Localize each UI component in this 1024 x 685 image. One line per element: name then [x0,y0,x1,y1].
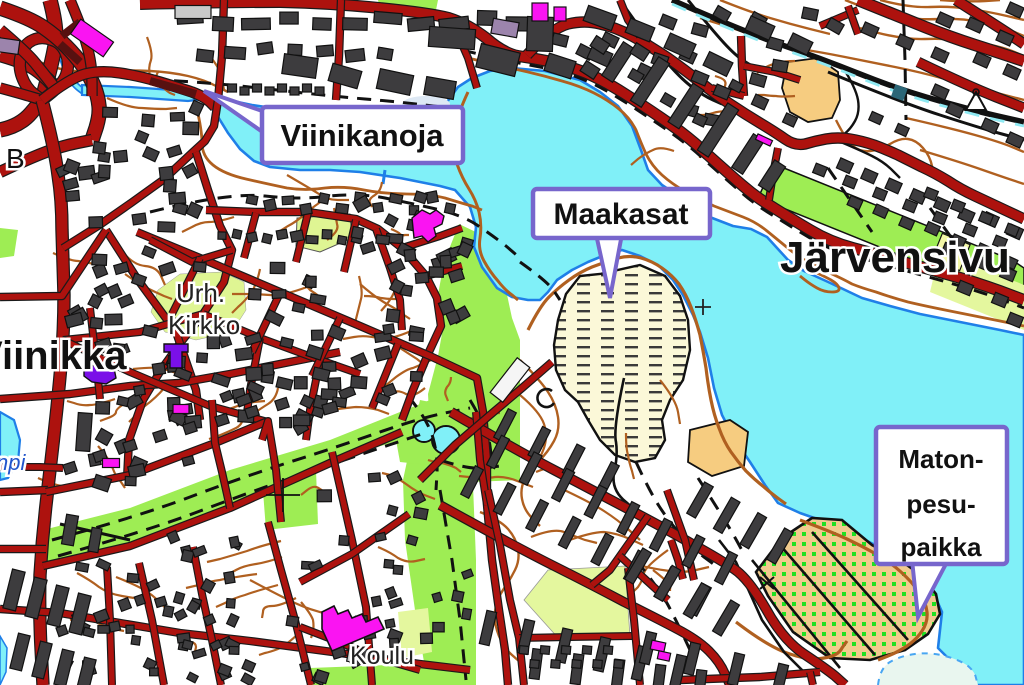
svg-text:Kirkko: Kirkko [168,310,240,340]
svg-text:B: B [6,143,25,174]
svg-text:Maton-: Maton- [898,444,983,474]
svg-text:Viinikka: Viinikka [0,334,127,378]
svg-text:Urh.: Urh. [176,278,225,308]
svg-text:paikka: paikka [901,532,982,562]
svg-text:pesu-: pesu- [906,489,975,519]
svg-text:Maakasat: Maakasat [553,198,688,231]
svg-text:Koulu: Koulu [350,642,414,670]
svg-text:Viinikanoja: Viinikanoja [280,118,444,153]
svg-text:Järvensivu: Järvensivu [780,233,1010,282]
svg-text:npi: npi [0,450,26,475]
